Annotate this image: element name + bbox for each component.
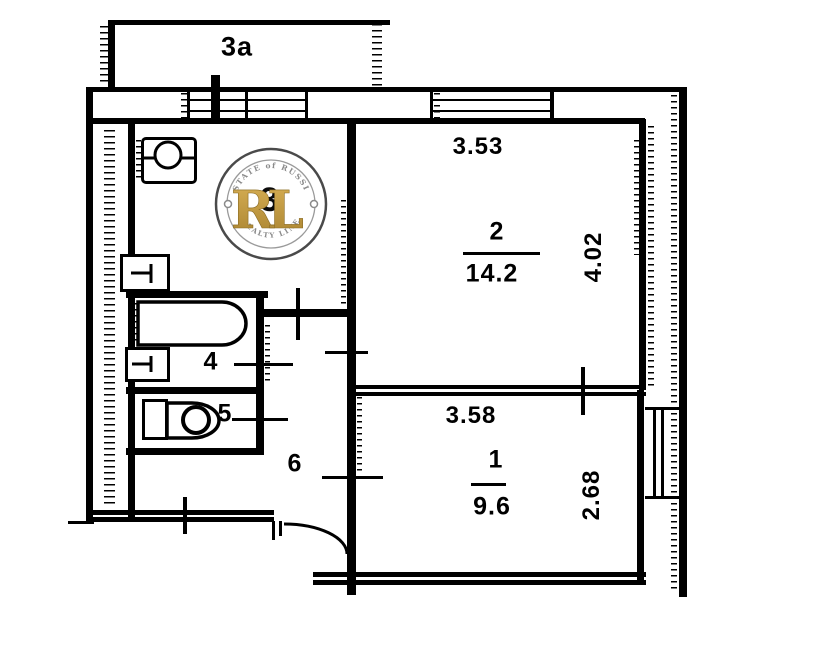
- watermark-logo: ESTATE of RUSSIA REALTY LINE 3 RL: [211, 144, 331, 264]
- room2-area: 14.2: [466, 260, 519, 289]
- room1-number: 1: [489, 446, 504, 475]
- toilet-number: 5: [218, 400, 233, 429]
- room1-area: 9.6: [473, 493, 511, 522]
- watermark-monogram: RL: [231, 180, 303, 241]
- vent-symbol-icon: [131, 264, 151, 372]
- entrance-door-arc: [284, 524, 347, 554]
- bathtub-icon: [138, 302, 246, 345]
- sink-bowl-icon: [155, 142, 181, 168]
- room2-depth-dim: 4.02: [580, 232, 608, 283]
- fixtures-layer: [0, 0, 837, 650]
- room1-fraction-line: [471, 483, 506, 486]
- balcony-label: 3a: [221, 32, 253, 63]
- room1-width-dim: 3.58: [446, 402, 497, 430]
- room1-depth-dim: 2.68: [578, 470, 606, 521]
- floor-plan: 3a 3.53 2 14.2 4.02 3.58 1 9.6 2.68 4 5 …: [0, 0, 837, 650]
- room2-number: 2: [490, 218, 505, 247]
- room2-fraction-line: [463, 252, 540, 255]
- hallway-number: 6: [288, 450, 303, 479]
- bathroom-number: 4: [204, 348, 219, 377]
- logo-dot-right: [311, 201, 318, 208]
- room2-width-dim: 3.53: [453, 133, 504, 161]
